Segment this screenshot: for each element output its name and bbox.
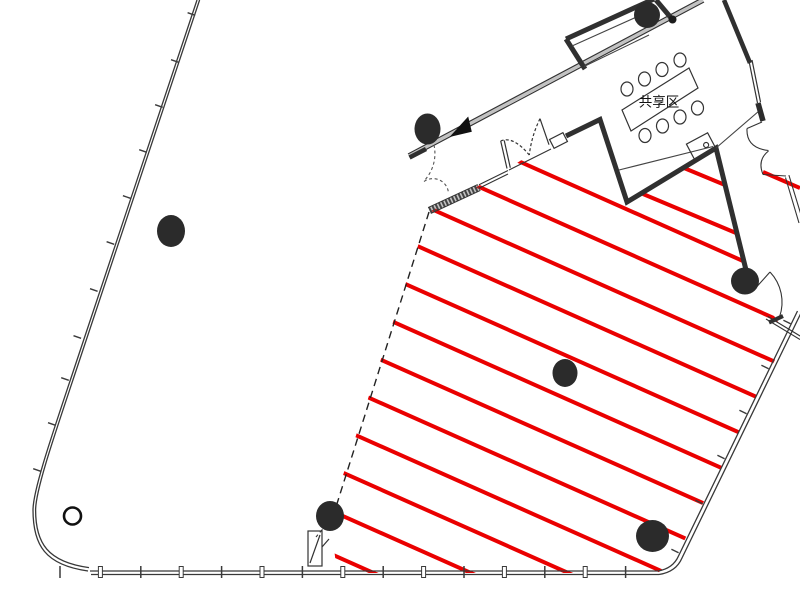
svg-text:共享区: 共享区 (639, 94, 680, 110)
